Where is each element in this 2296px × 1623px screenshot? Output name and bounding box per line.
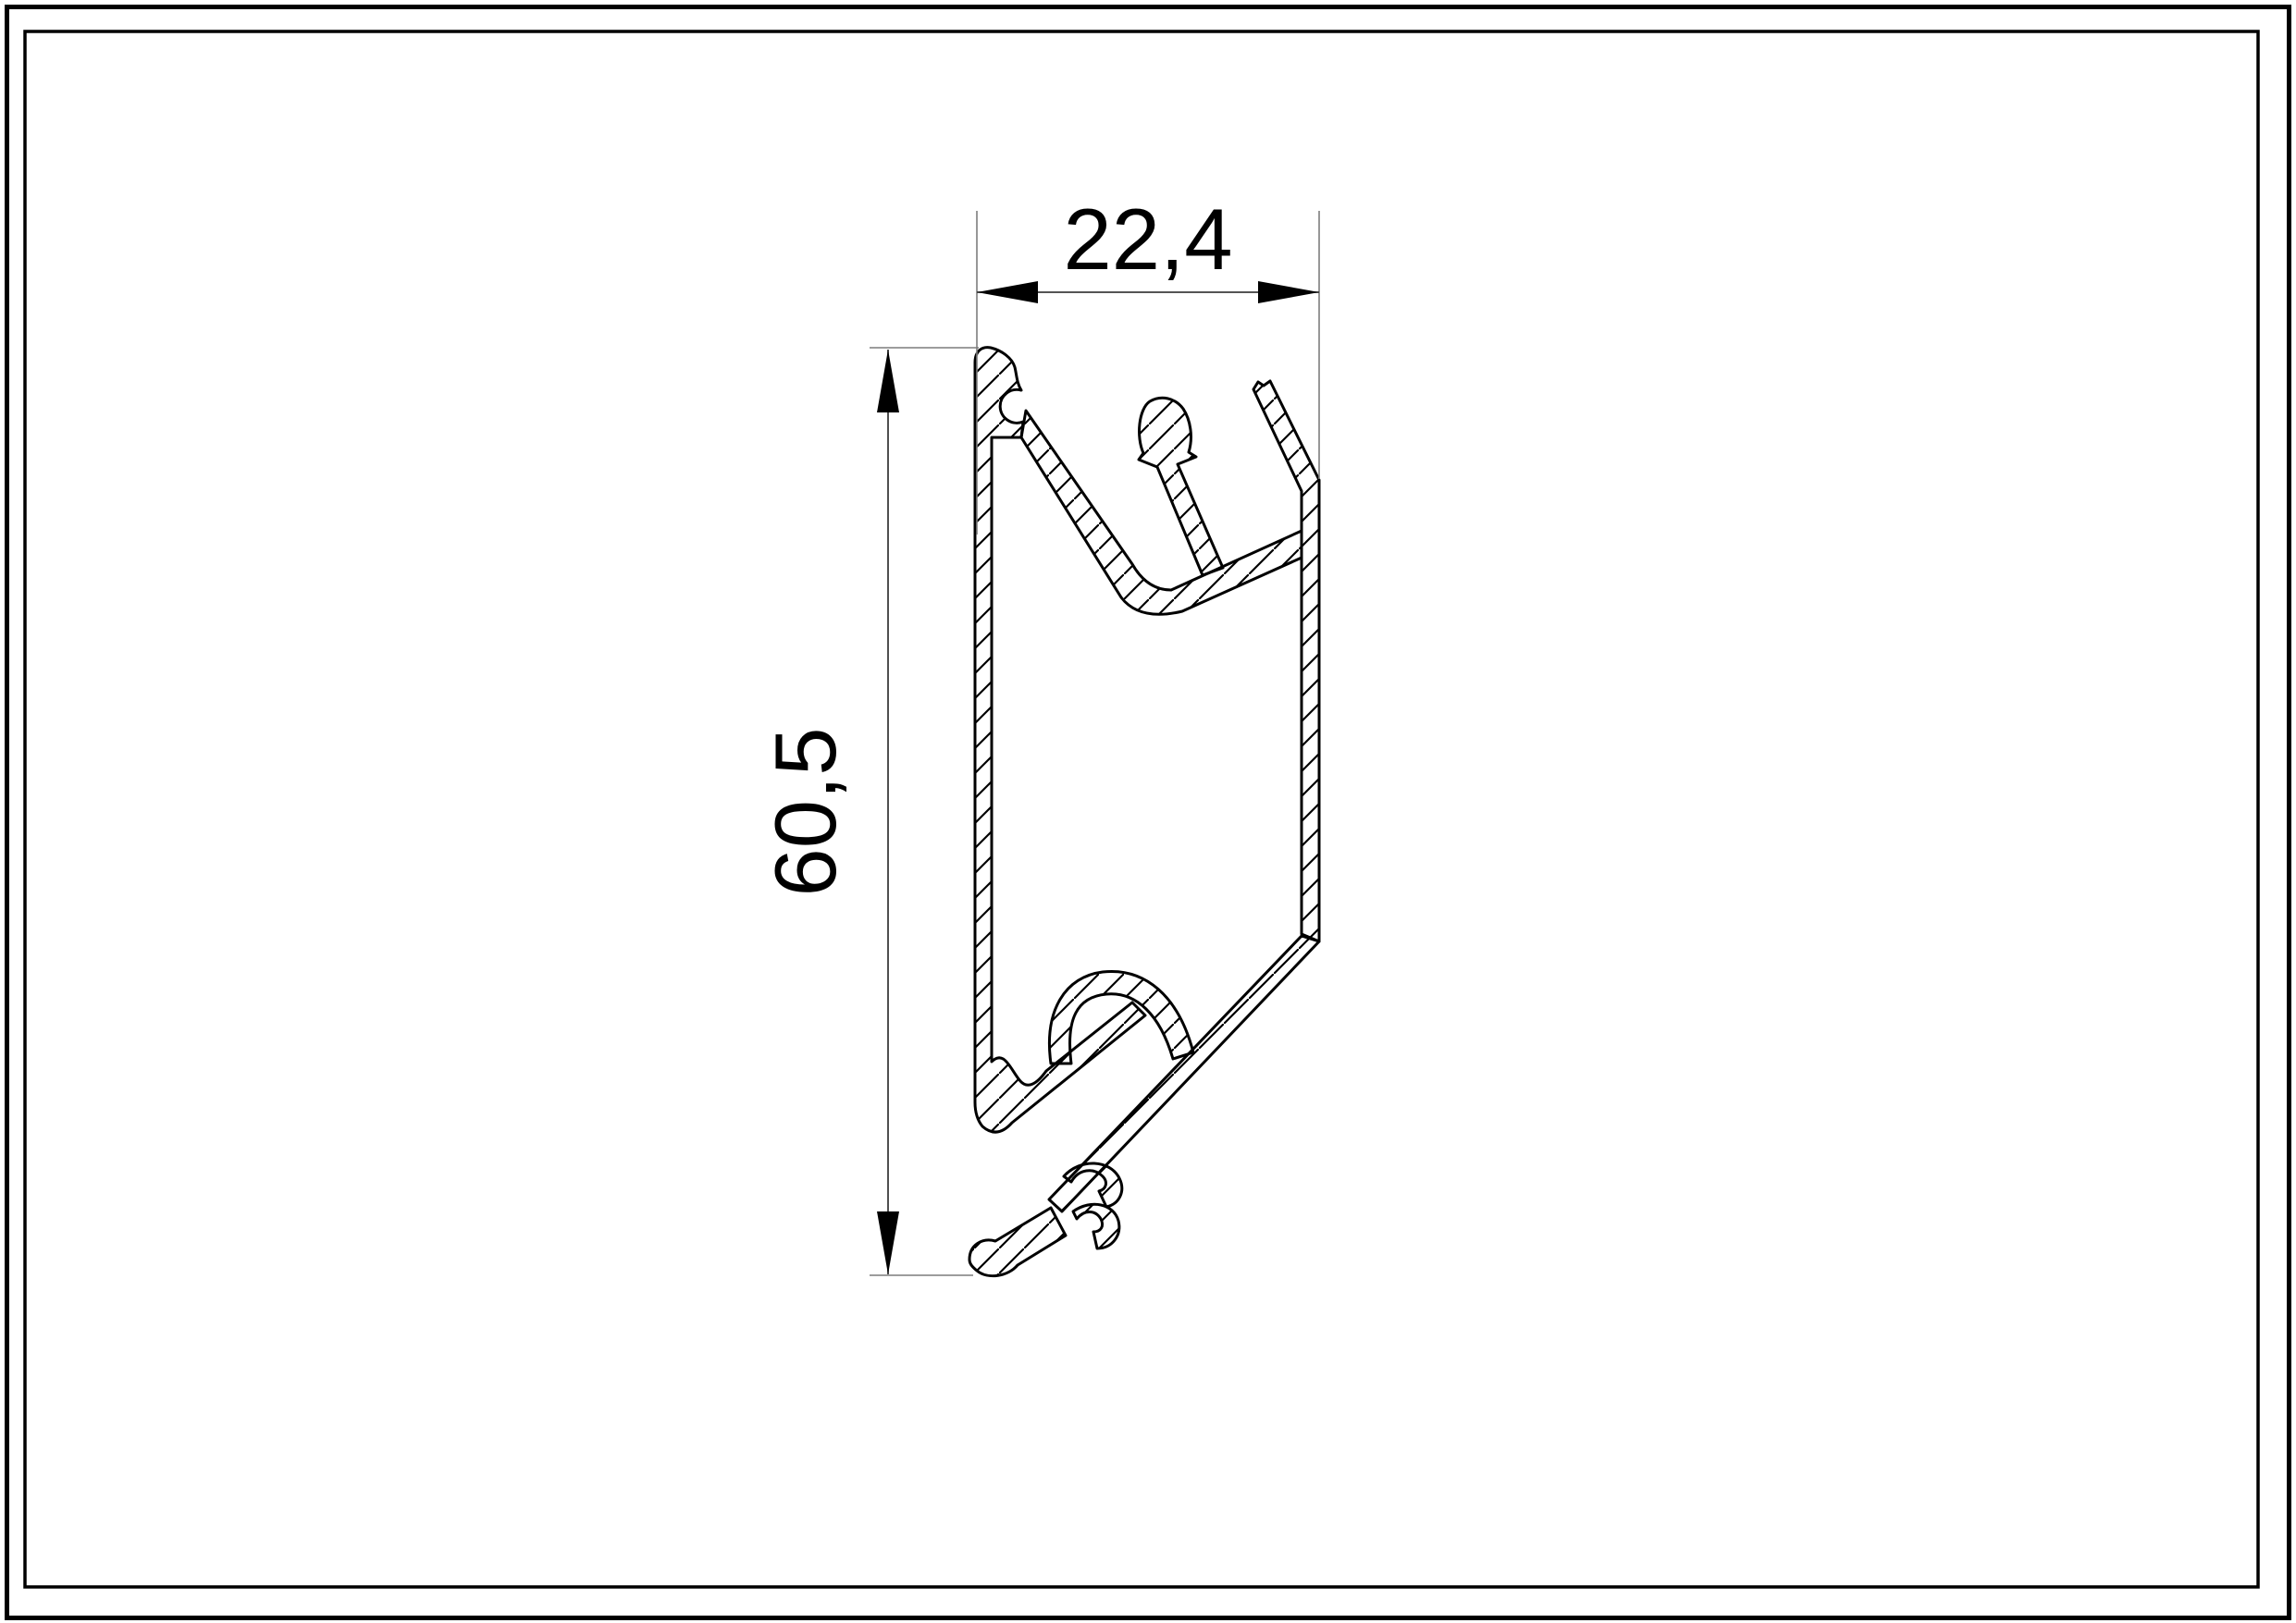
dimension-width: 22,4: [977, 191, 1319, 535]
arrowhead-left-icon: [977, 281, 1038, 303]
profile-foot: [969, 1208, 1066, 1276]
dimension-height-label: 60,5: [757, 728, 854, 897]
profile-c-hook-lower: [1073, 1204, 1119, 1248]
arrowhead-top-icon: [877, 350, 899, 412]
dimension-width-label: 22,4: [1064, 191, 1233, 288]
arrowhead-right-icon: [1258, 281, 1319, 303]
profile-stem-head: [1139, 398, 1223, 575]
profile-cross-section: [969, 348, 1319, 1276]
profile-right-wall: [1253, 381, 1319, 941]
drawing-svg: 22,4 60,5: [0, 0, 2296, 1623]
arrowhead-bottom-icon: [877, 1211, 899, 1274]
dimension-height: 60,5: [757, 348, 979, 1275]
drawing-sheet: 22,4 60,5: [0, 0, 2296, 1623]
